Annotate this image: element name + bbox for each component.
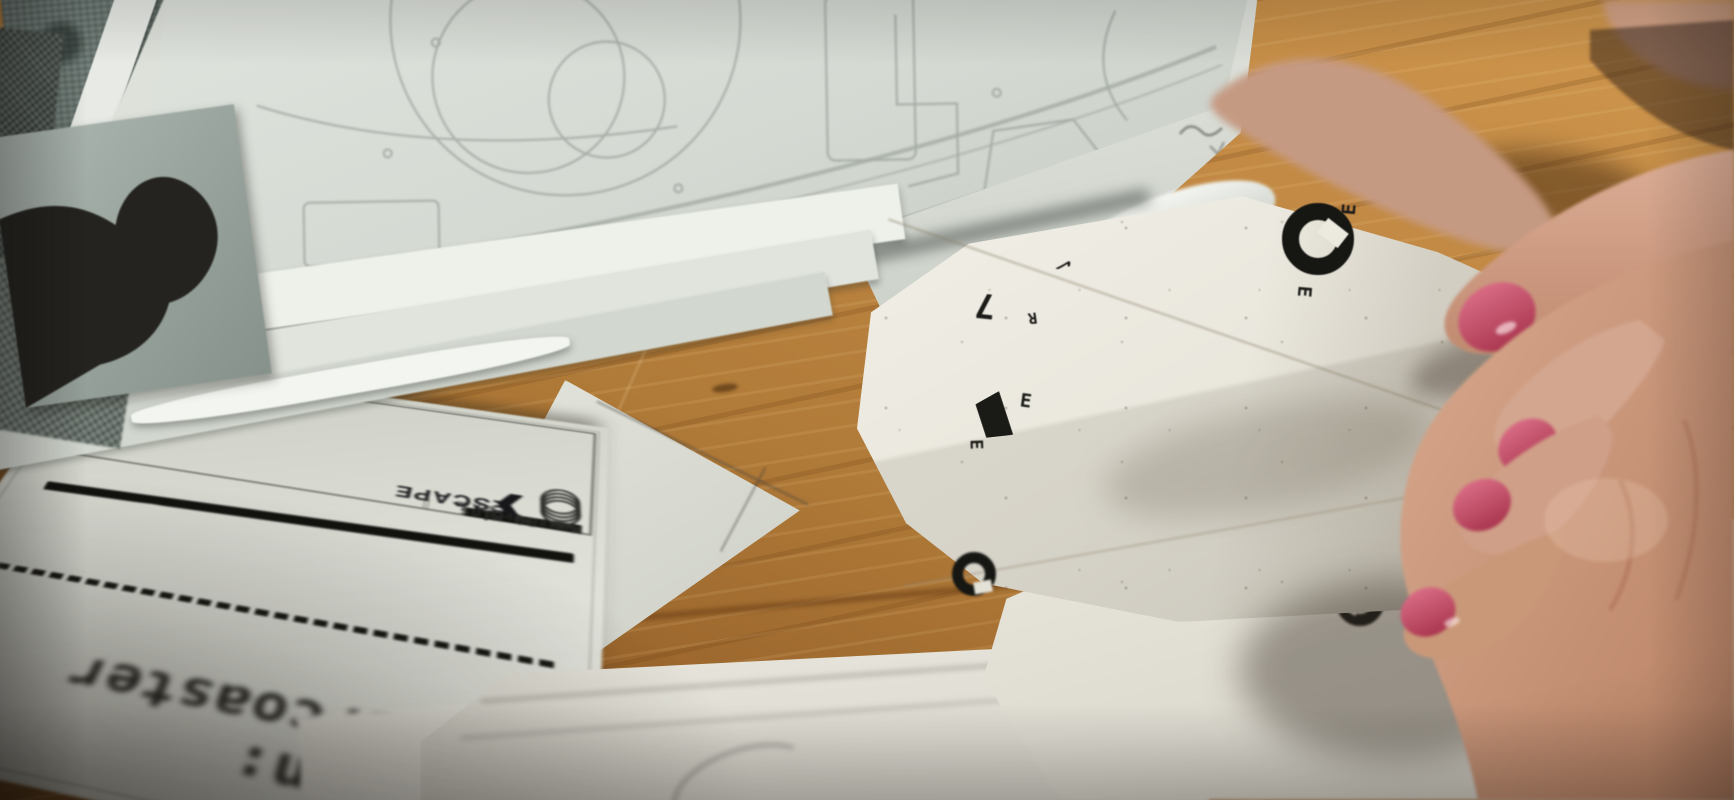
finger-gap-shadow (1590, 20, 1734, 150)
photo-scene: Mission: Rollercoaster ESCAPE TEAM (0, 0, 1734, 800)
hand (0, 0, 1734, 800)
knuckle-highlight (1544, 478, 1668, 562)
